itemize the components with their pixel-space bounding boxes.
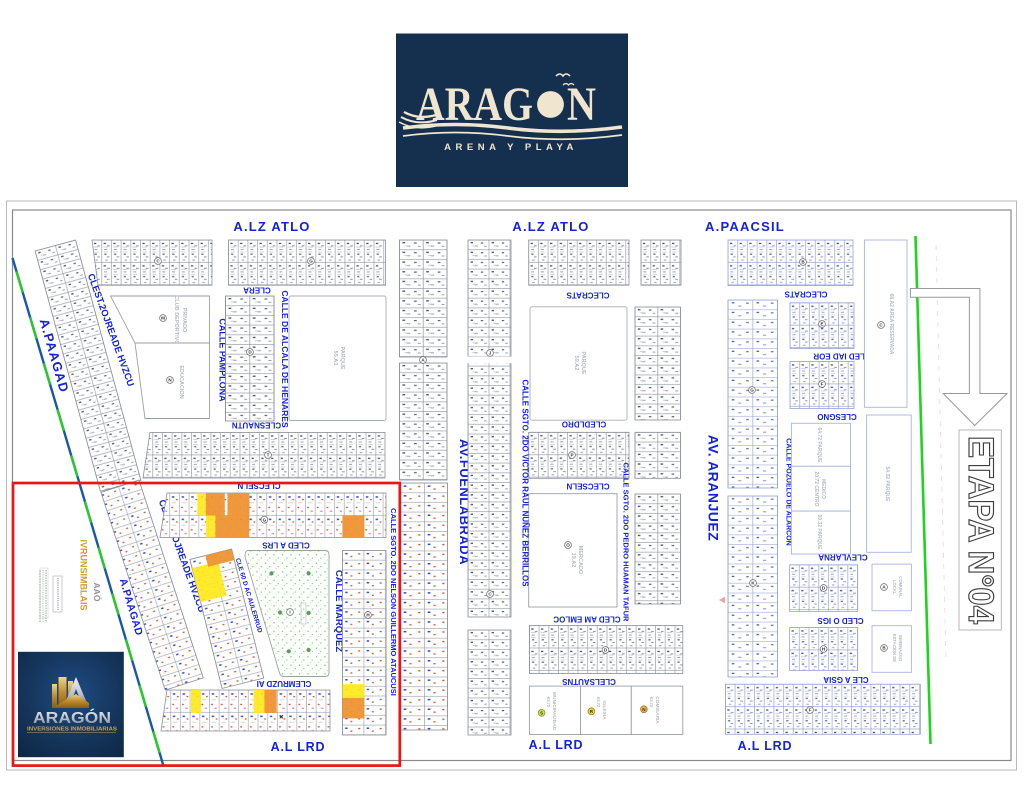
svg-text:PARQUE: PARQUE <box>580 351 586 374</box>
svg-text:F: F <box>821 382 824 387</box>
svg-text:55.A3: 55.A3 <box>332 351 338 366</box>
svg-text:63.72: 63.72 <box>649 697 654 708</box>
svg-text:O: O <box>566 543 570 548</box>
svg-text:AV. ARANJUEZ: AV. ARANJUEZ <box>706 435 722 542</box>
svg-text:20.72 CENTRO: 20.72 CENTRO <box>813 471 819 506</box>
svg-text:A.L LRD: A.L LRD <box>271 740 326 754</box>
svg-text:ETAPA N°04: ETAPA N°04 <box>961 436 1000 624</box>
svg-text:COMUNAL: COMUNAL <box>898 576 903 598</box>
svg-text:CLED AM EMLOC: CLED AM EMLOC <box>553 615 620 624</box>
svg-text:CALLE POZUELO DE ALARCON: CALLE POZUELO DE ALARCON <box>785 438 792 545</box>
svg-text:S: S <box>540 711 543 716</box>
svg-text:P: P <box>570 453 573 458</box>
svg-text:I: I <box>289 610 290 615</box>
svg-text:EDUCACION: EDUCACION <box>178 365 184 398</box>
svg-text:CLECSELN: CLECSELN <box>566 482 609 491</box>
svg-text:CLELSAUTNS: CLELSAUTNS <box>561 677 615 686</box>
svg-text:✕: ✕ <box>279 714 284 721</box>
svg-text:CLED O IGS: CLED O IGS <box>817 616 864 625</box>
svg-text:G: G <box>750 388 754 393</box>
svg-text:LOCAL: LOCAL <box>892 580 897 595</box>
svg-text:G: G <box>309 259 313 264</box>
svg-text:J: J <box>489 351 492 356</box>
svg-text:INVERSIONES INMOBILIARIAS: INVERSIONES INMOBILIARIAS <box>27 727 118 733</box>
svg-text:A.L LRD: A.L LRD <box>738 739 793 753</box>
svg-text:CLED IAD EOR: CLED IAD EOR <box>813 352 871 361</box>
svg-text:CLECRATS: CLECRATS <box>784 290 828 299</box>
svg-text:T: T <box>267 453 270 458</box>
svg-text:CALLE DE ALCALA DE HENARES: CALLE DE ALCALA DE HENARES <box>280 290 290 428</box>
svg-text:CALLE SGTO. 2DO NELSON GUILLER: CALLE SGTO. 2DO NELSON GUILLERMO ATAUCUS… <box>389 508 398 696</box>
svg-text:64.72 PARQUE: 64.72 PARQUE <box>816 428 822 464</box>
svg-text:PRIVADO: PRIVADO <box>181 308 187 333</box>
svg-text:CLED A LRS: CLED A LRS <box>262 541 310 550</box>
svg-text:SERENAZGO: SERENAZGO <box>898 635 903 662</box>
svg-text:A.LZ ATLO: A.LZ ATLO <box>512 219 589 234</box>
svg-text:CLERA: CLERA <box>243 286 271 295</box>
svg-text:CALLE SGTO. 2DO VICTOR RAUL NU: CALLE SGTO. 2DO VICTOR RAUL NUÑEZ BERRIL… <box>521 379 530 587</box>
svg-text:ARENA Y PLAYA: ARENA Y PLAYA <box>444 142 578 153</box>
svg-text:CLESNAUTN: CLESNAUTN <box>232 421 282 430</box>
svg-text:CLECRATS: CLECRATS <box>566 291 610 300</box>
svg-text:N: N <box>567 78 596 131</box>
svg-text:IVRUNSIMBLAIS: IVRUNSIMBLAIS <box>79 539 89 610</box>
svg-text:MEDICO: MEDICO <box>820 479 826 499</box>
svg-text:G: G <box>263 517 267 522</box>
svg-text:CLEVLARNA: CLEVLARNA <box>818 553 868 562</box>
svg-text:CLEMRUZD AI: CLEMRUZD AI <box>257 679 312 688</box>
svg-text:54.32 PARQUE: 54.32 PARQUE <box>884 467 890 503</box>
svg-text:63.72: 63.72 <box>546 697 551 708</box>
svg-text:A.L LRD: A.L LRD <box>529 738 584 752</box>
svg-text:ESTACION DE: ESTACION DE <box>892 634 897 663</box>
svg-text:AAÓ: AAÓ <box>92 583 103 602</box>
svg-text:63.72: 63.72 <box>596 697 601 708</box>
svg-text:F: F <box>809 708 812 713</box>
svg-text:ARAGÓN: ARAGÓN <box>33 708 111 727</box>
svg-text:MERCADO: MERCADO <box>577 546 583 575</box>
svg-text:59.32 PARQUE: 59.32 PARQUE <box>816 515 822 551</box>
svg-text:CLE A GSIA: CLE A GSIA <box>823 675 868 684</box>
svg-text:ARAG: ARAG <box>416 78 533 131</box>
svg-text:19.A2: 19.A2 <box>570 553 576 568</box>
svg-text:A.PAACSIL: A.PAACSIL <box>705 219 785 234</box>
svg-text:59.A2: 59.A2 <box>573 356 579 371</box>
svg-text:CLESGNO: CLESGNO <box>817 412 857 421</box>
svg-text:PARQUE: PARQUE <box>339 346 345 369</box>
svg-text:CLEDLDRO: CLEDLDRO <box>562 420 606 429</box>
svg-text:M: M <box>161 316 165 321</box>
svg-text:CALLE SGTO. 2DO PEDRO HUAMAN T: CALLE SGTO. 2DO PEDRO HUAMAN TAFUR <box>622 463 631 622</box>
svg-text:A.LZ ATLO: A.LZ ATLO <box>233 219 310 234</box>
svg-text:E: E <box>820 322 823 327</box>
svg-text:68.A2 AREA RESERVADA: 68.A2 AREA RESERVADA <box>888 294 894 355</box>
svg-text:CLUB DEPORTIVO: CLUB DEPORTIVO <box>173 295 179 345</box>
